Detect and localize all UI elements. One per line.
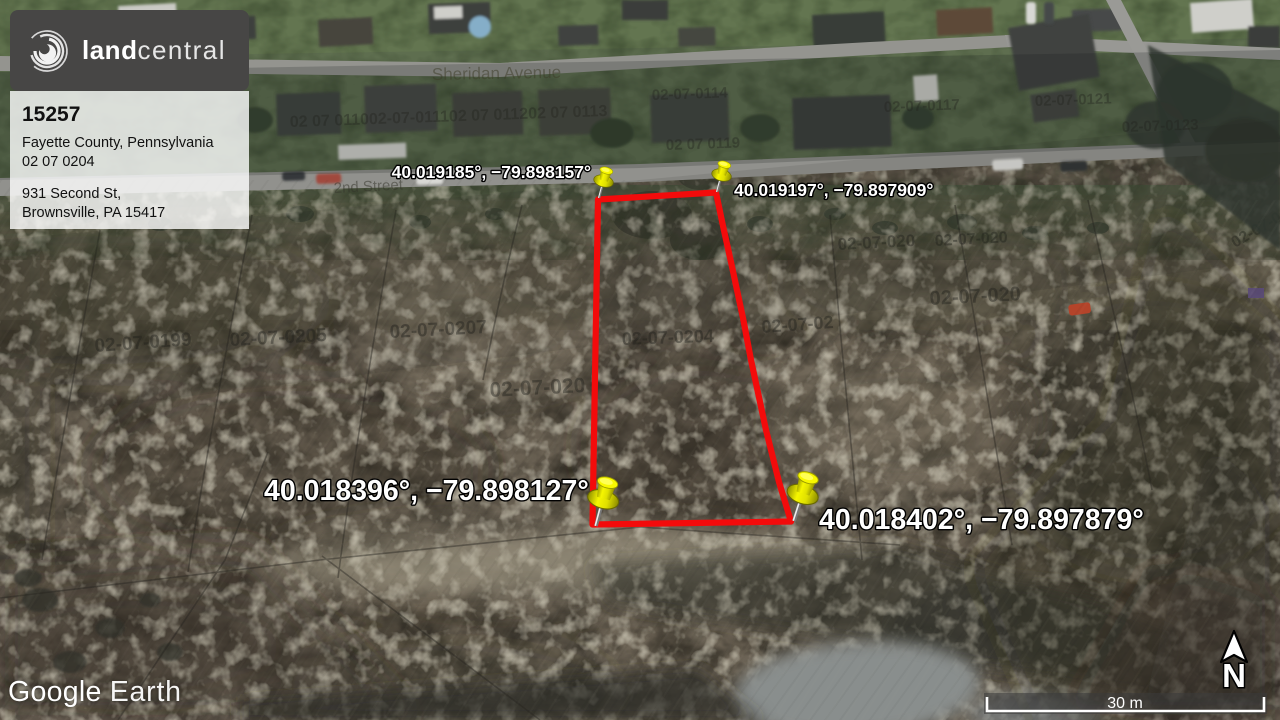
svg-text:40.019197°, −79.897909°: 40.019197°, −79.897909° — [734, 180, 933, 200]
svg-text:40.018402°, −79.897879°: 40.018402°, −79.897879° — [819, 504, 1144, 536]
svg-text:40.018396°, −79.898127°: 40.018396°, −79.898127° — [264, 475, 589, 507]
svg-text:30 m: 30 m — [1107, 695, 1143, 712]
svg-text:N: N — [1222, 657, 1246, 694]
svg-text:40.019185°, −79.898157°: 40.019185°, −79.898157° — [392, 162, 591, 182]
